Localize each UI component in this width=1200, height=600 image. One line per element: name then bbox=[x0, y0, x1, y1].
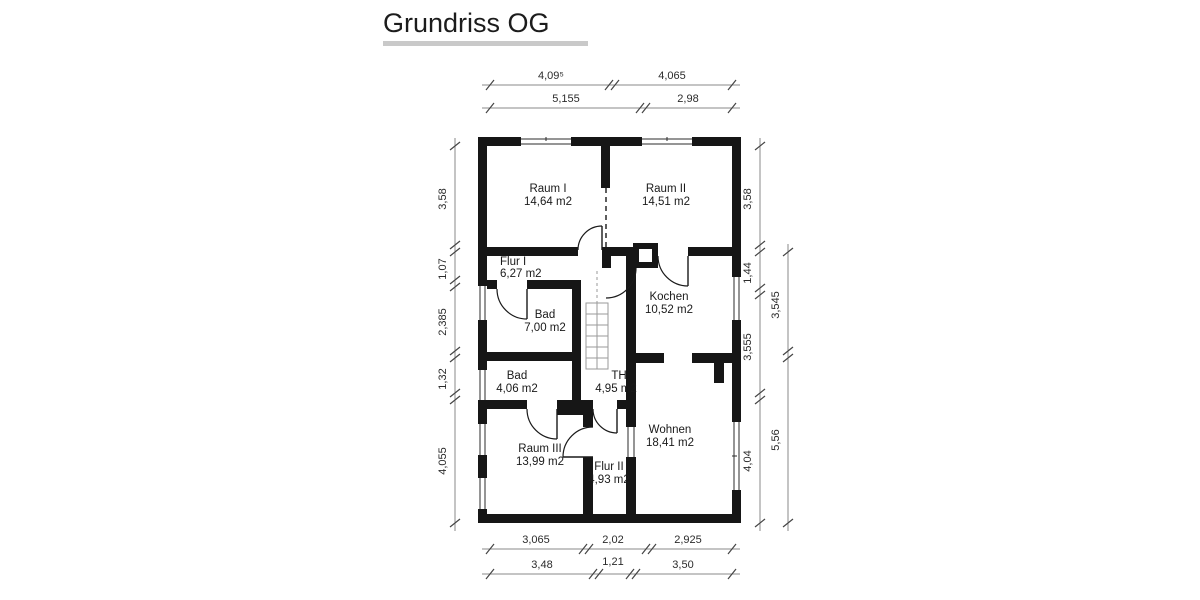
room-name-kochen: Kochen bbox=[649, 291, 688, 303]
room-area-bad-2: 4,06 m2 bbox=[496, 383, 538, 395]
room-area-kochen: 10,52 m2 bbox=[645, 304, 693, 316]
dim-right-outer-1: 3,545 bbox=[770, 291, 782, 319]
dim-right-inner-3: 3,555 bbox=[742, 333, 754, 361]
room-name-wohnen: Wohnen bbox=[649, 424, 692, 436]
room-area-raum-i: 14,64 m2 bbox=[524, 196, 572, 208]
dimensions-right-inner: 3,58 1,44 3,555 4,04 bbox=[742, 138, 765, 531]
dim-bottom1-c: 2,925 bbox=[674, 534, 702, 546]
room-name-raum-iii: Raum III bbox=[518, 443, 561, 455]
chimney bbox=[633, 243, 658, 268]
dim-left-5: 4,055 bbox=[437, 447, 449, 475]
dim-bottom1-a: 3,065 bbox=[522, 534, 550, 546]
room-name-bad-2: Bad bbox=[507, 370, 527, 382]
room-area-flur-ii: 4,93 m2 bbox=[588, 474, 630, 486]
dim-bottom1-b: 2,02 bbox=[602, 534, 623, 546]
dim-bottom2-c: 3,50 bbox=[672, 559, 693, 571]
floor-plan-drawing: Raum I 14,64 m2 Raum II 14,51 m2 Flur I … bbox=[0, 0, 1200, 600]
dim-top1-a: 4,09⁵ bbox=[538, 70, 564, 82]
dimensions-right-outer: 3,545 5,56 bbox=[770, 244, 793, 531]
room-area-raum-ii: 14,51 m2 bbox=[642, 196, 690, 208]
room-name-bad-1: Bad bbox=[535, 309, 555, 321]
dim-left-4: 1,32 bbox=[437, 368, 449, 389]
room-area-bad-1: 7,00 m2 bbox=[524, 322, 566, 334]
dim-top2-b: 2,98 bbox=[677, 93, 698, 105]
room-area-raum-iii: 13,99 m2 bbox=[516, 456, 564, 468]
room-name-raum-ii: Raum II bbox=[646, 183, 686, 195]
dim-bottom2-b: 1,21 bbox=[602, 556, 623, 568]
dim-left-3: 2,385 bbox=[437, 308, 449, 336]
dim-top1-b: 4,065 bbox=[658, 70, 686, 82]
room-area-wohnen: 18,41 m2 bbox=[646, 437, 694, 449]
room-name-flur-ii: Flur II bbox=[594, 461, 623, 473]
floor-plan-page: Grundriss OG bbox=[0, 0, 1200, 600]
dim-bottom2-a: 3,48 bbox=[531, 559, 552, 571]
room-name-th: TH bbox=[611, 370, 626, 382]
room-area-th: 4,95 m2 bbox=[595, 383, 637, 395]
room-name-raum-i: Raum I bbox=[529, 183, 566, 195]
dim-right-inner-2: 1,44 bbox=[742, 262, 754, 283]
dimensions-top: 4,09⁵ 4,065 5,155 2,98 bbox=[482, 70, 740, 113]
dim-top2-a: 5,155 bbox=[552, 93, 580, 105]
dim-right-inner-1: 3,58 bbox=[742, 188, 754, 209]
room-name-flur-i: Flur I bbox=[500, 256, 526, 268]
dim-right-inner-4: 4,04 bbox=[742, 450, 754, 471]
staircase bbox=[586, 271, 608, 369]
room-area-flur-i: 6,27 m2 bbox=[500, 268, 542, 280]
dim-right-outer-2: 5,56 bbox=[770, 429, 782, 450]
dimensions-left: 3,58 1,07 2,385 1,32 4,055 bbox=[437, 138, 460, 531]
dimensions-bottom: 3,065 2,02 2,925 3,48 1,21 3,50 bbox=[482, 534, 740, 579]
dim-left-2: 1,07 bbox=[437, 258, 449, 279]
dim-left-1: 3,58 bbox=[437, 188, 449, 209]
